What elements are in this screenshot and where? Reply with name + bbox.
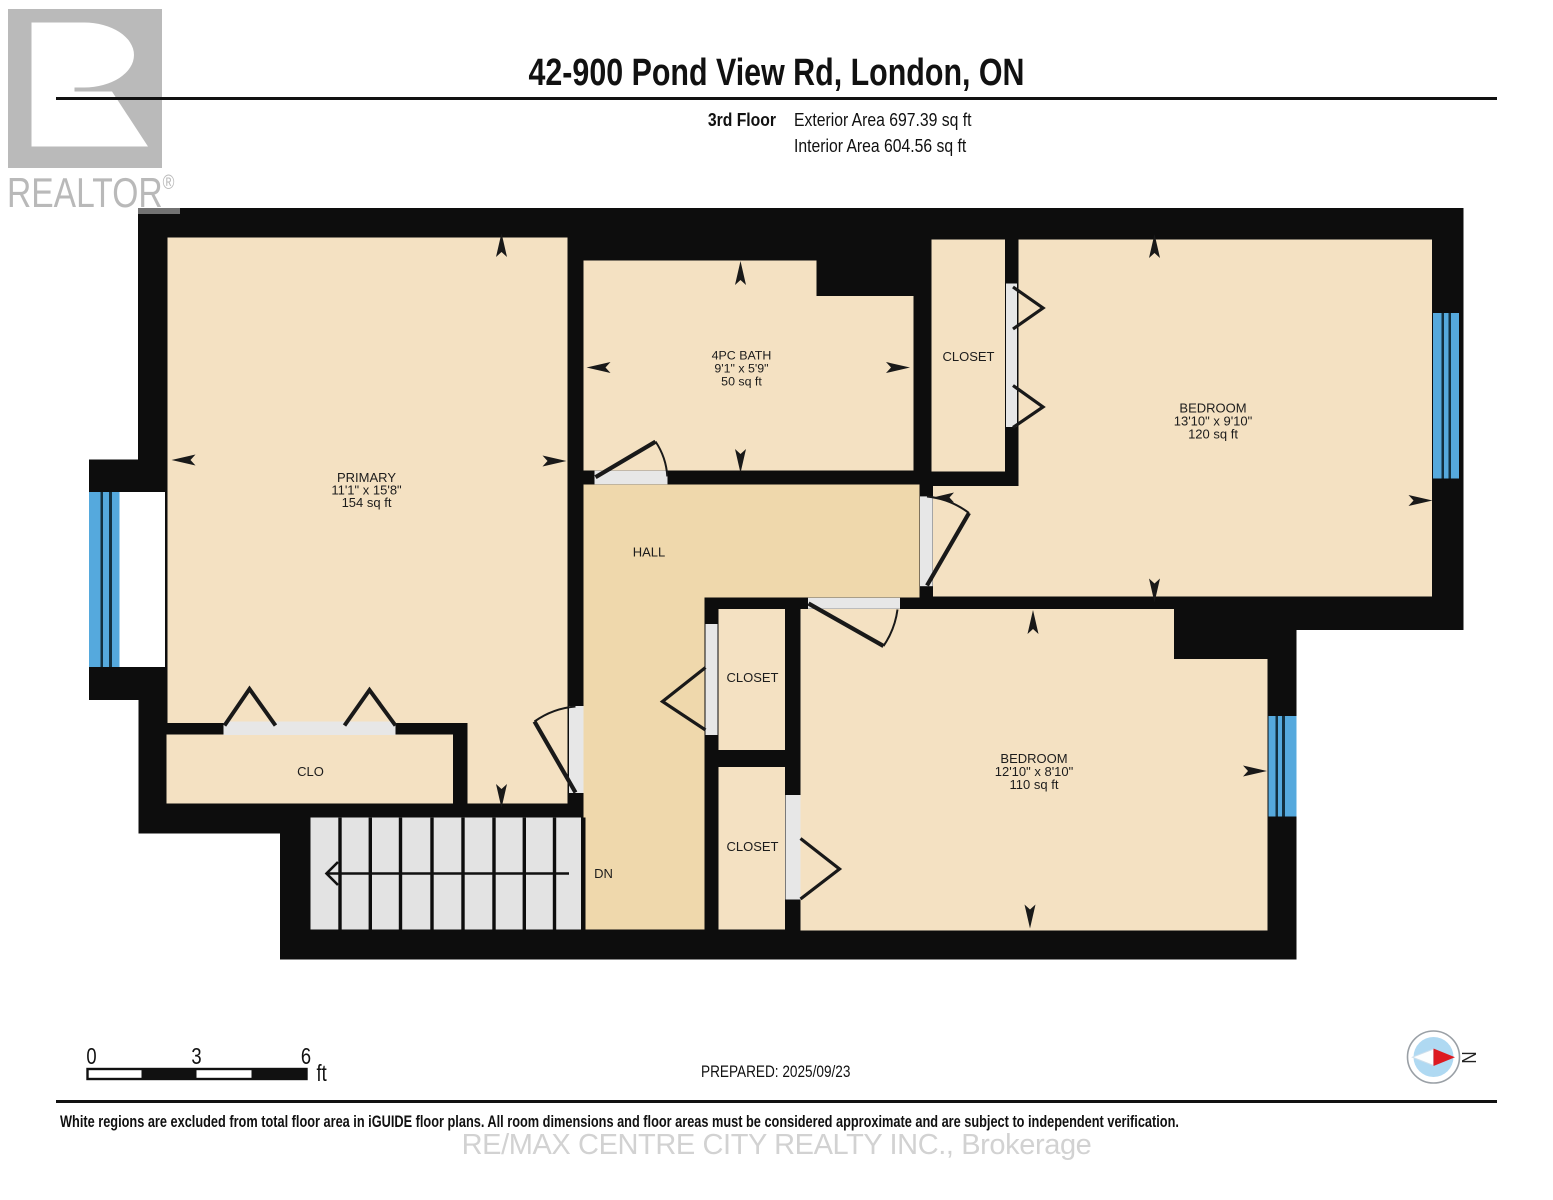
svg-text:0: 0 <box>86 1044 96 1069</box>
svg-text:6: 6 <box>301 1044 311 1069</box>
svg-text:50 sq ft: 50 sq ft <box>721 375 762 389</box>
svg-text:CLO: CLO <box>297 764 324 779</box>
svg-text:CLOSET: CLOSET <box>726 839 778 854</box>
svg-text:110 sq ft: 110 sq ft <box>1010 777 1059 792</box>
svg-text:120 sq ft: 120 sq ft <box>1188 427 1238 442</box>
svg-text:ft: ft <box>317 1061 327 1086</box>
svg-text:154 sq ft: 154 sq ft <box>342 495 392 510</box>
svg-text:DN: DN <box>594 866 613 881</box>
svg-text:HALL: HALL <box>633 545 666 560</box>
svg-text:CLOSET: CLOSET <box>942 349 994 364</box>
svg-text:CLOSET: CLOSET <box>726 670 778 685</box>
svg-text:N: N <box>1458 1051 1481 1063</box>
svg-text:3: 3 <box>191 1044 201 1069</box>
svg-text:9'1" x 5'9": 9'1" x 5'9" <box>714 362 768 376</box>
svg-text:4PC BATH: 4PC BATH <box>712 349 772 363</box>
